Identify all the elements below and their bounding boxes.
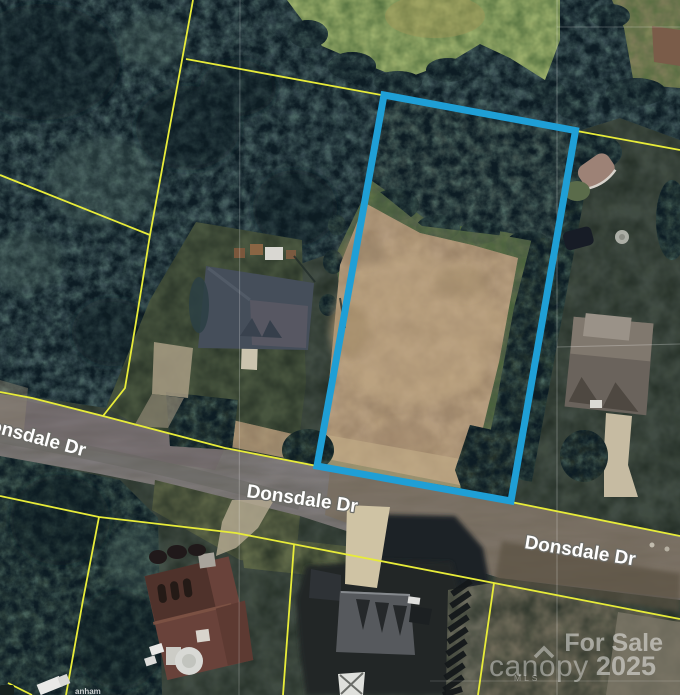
svg-text:2025: 2025	[596, 651, 656, 681]
svg-text:anham: anham	[75, 687, 101, 695]
svg-text:MLS: MLS	[514, 673, 540, 683]
